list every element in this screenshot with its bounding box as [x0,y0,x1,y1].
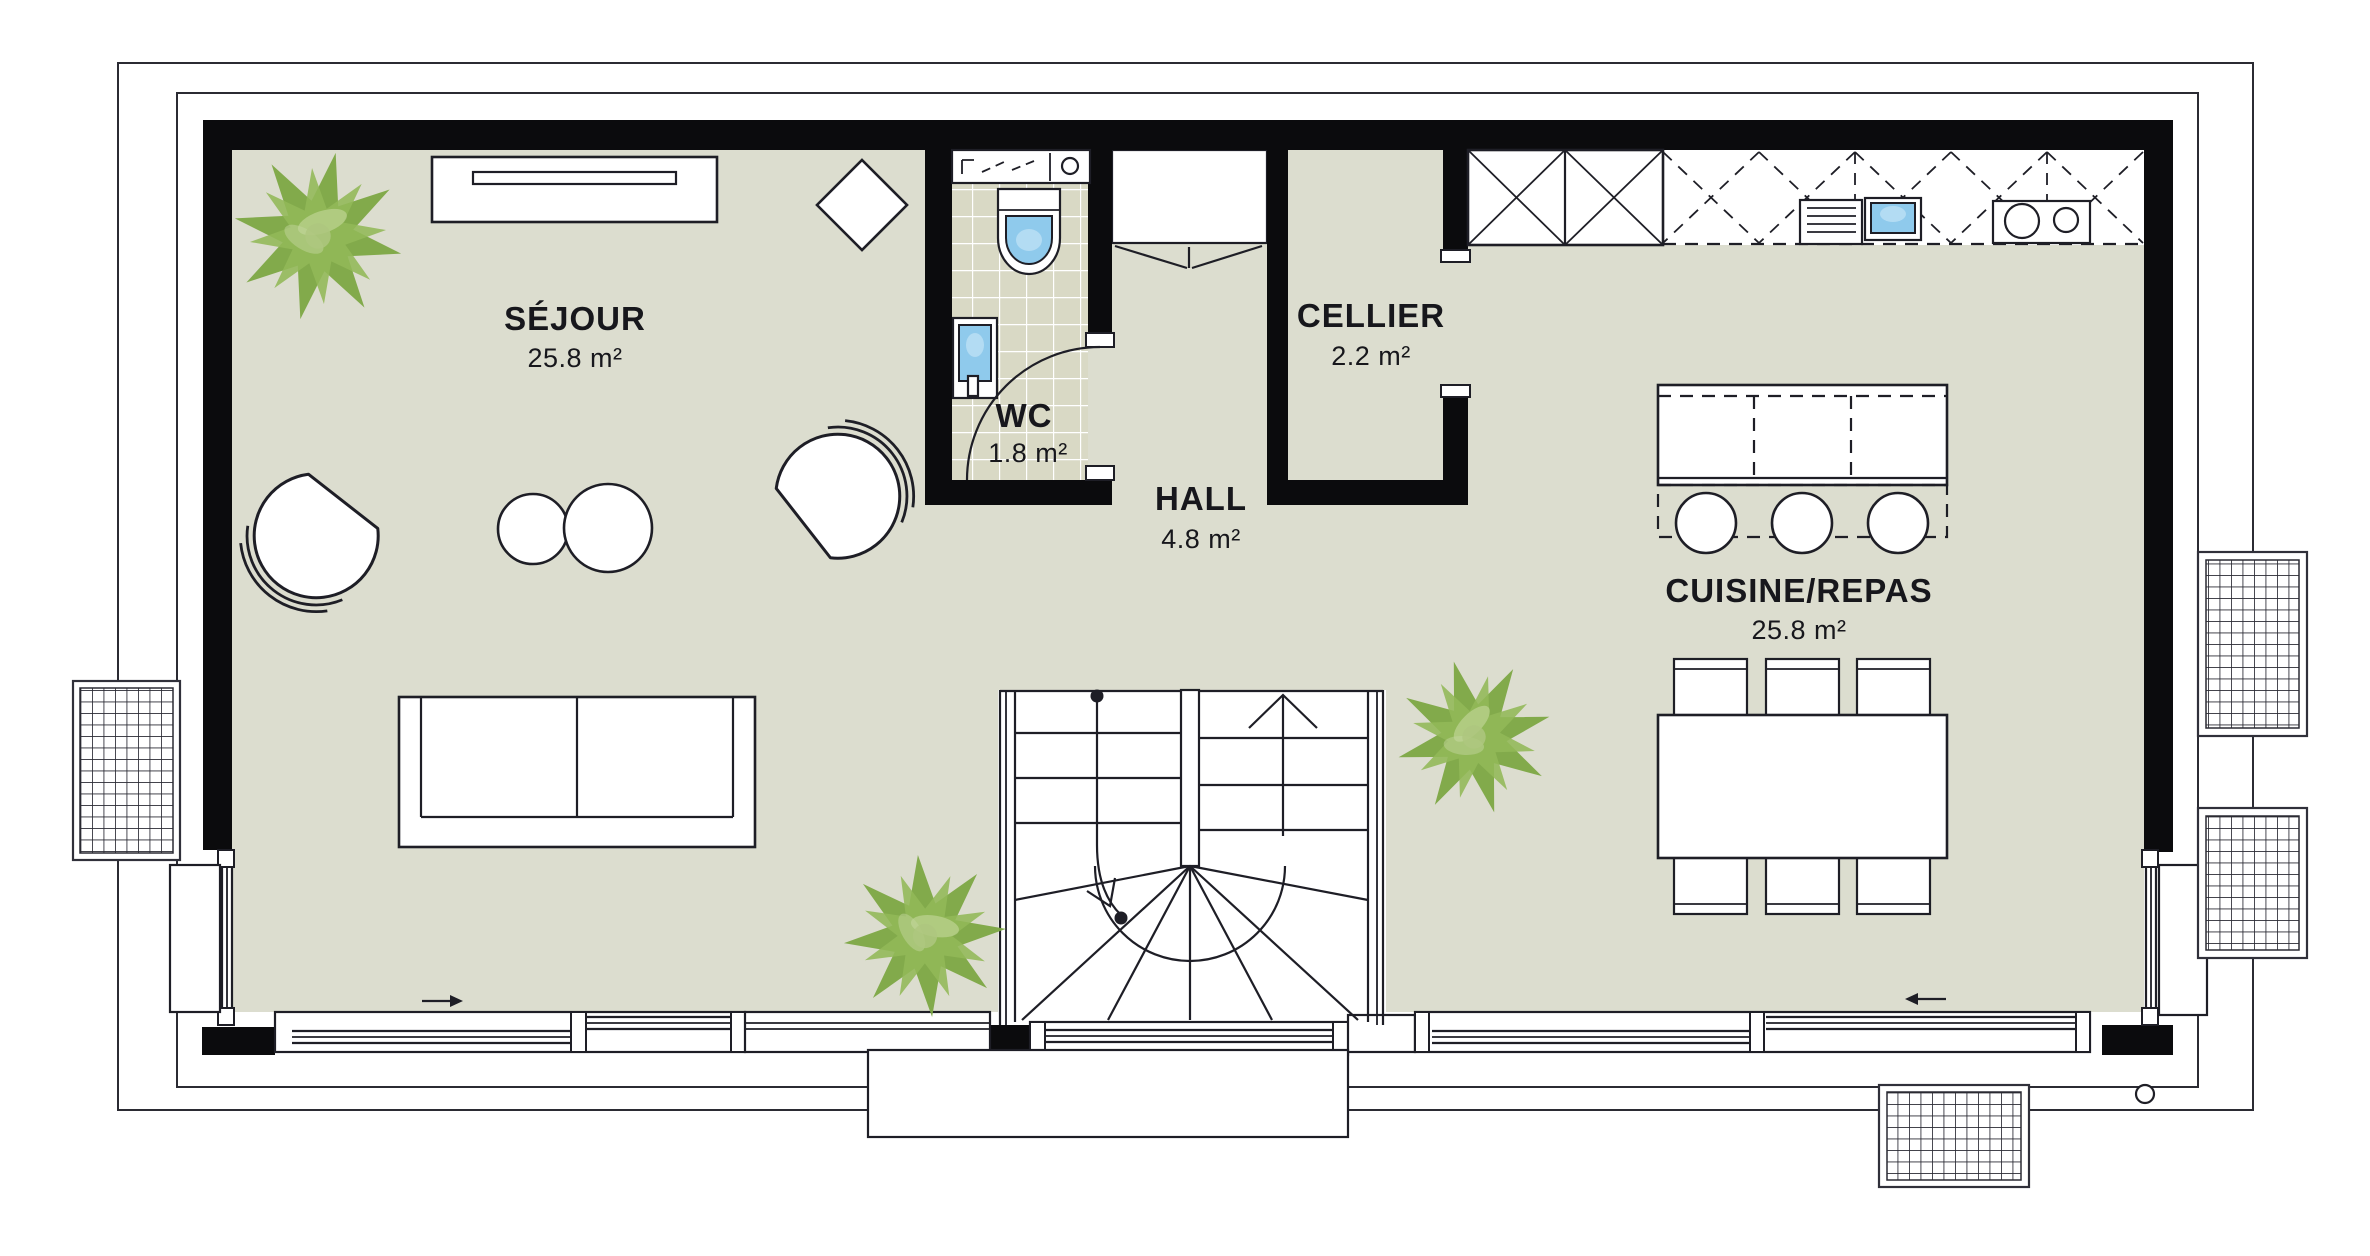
entrance-door-recess [1112,150,1267,243]
wc-sink [953,318,997,398]
entry-deck-slab [868,1050,1348,1137]
room-label-cuisine: CUISINE/REPAS [1665,572,1932,609]
coffee-tables [498,484,652,572]
terrace-grate-bottom-right [1879,1085,2029,1187]
tv-console [432,157,717,222]
cooktop [1993,201,2090,243]
kitchen-tall-cabinets [1468,150,1663,245]
sliding-window-right [1415,1012,2090,1052]
room-area-wc: 1.8 m² [988,438,1068,468]
room-area-hall: 4.8 m² [1161,524,1241,554]
room-label-sejour: SÉJOUR [504,300,646,337]
room-label-wc: WC [996,397,1053,434]
terrace-grate-left [73,681,180,860]
room-area-sejour: 25.8 m² [527,343,622,373]
terrace-grate-right-upper [2198,552,2307,736]
room-label-cellier: CELLIER [1297,297,1445,334]
wc-toilet [998,189,1060,274]
room-label-hall: HALL [1155,480,1247,517]
room-area-cuisine: 25.8 m² [1751,615,1846,645]
left-wall-window [170,865,232,1012]
exterior-drain-circle [2136,1085,2154,1103]
dishwasher [1800,200,1862,244]
room-area-cellier: 2.2 m² [1331,341,1411,371]
wc-window-strip [952,150,1090,183]
kitchen-sink [1865,198,1921,240]
sliding-window-left [275,1012,745,1052]
terrace-grate-right-lower [2198,808,2307,958]
sofa [399,697,755,847]
dining-table [1658,715,1947,858]
floor-plan: SÉJOUR 25.8 m² WC 1.8 m² HALL 4.8 m² CEL… [0,0,2370,1256]
bar-stools [1676,493,1928,553]
fixed-glazing-band [745,1012,990,1052]
